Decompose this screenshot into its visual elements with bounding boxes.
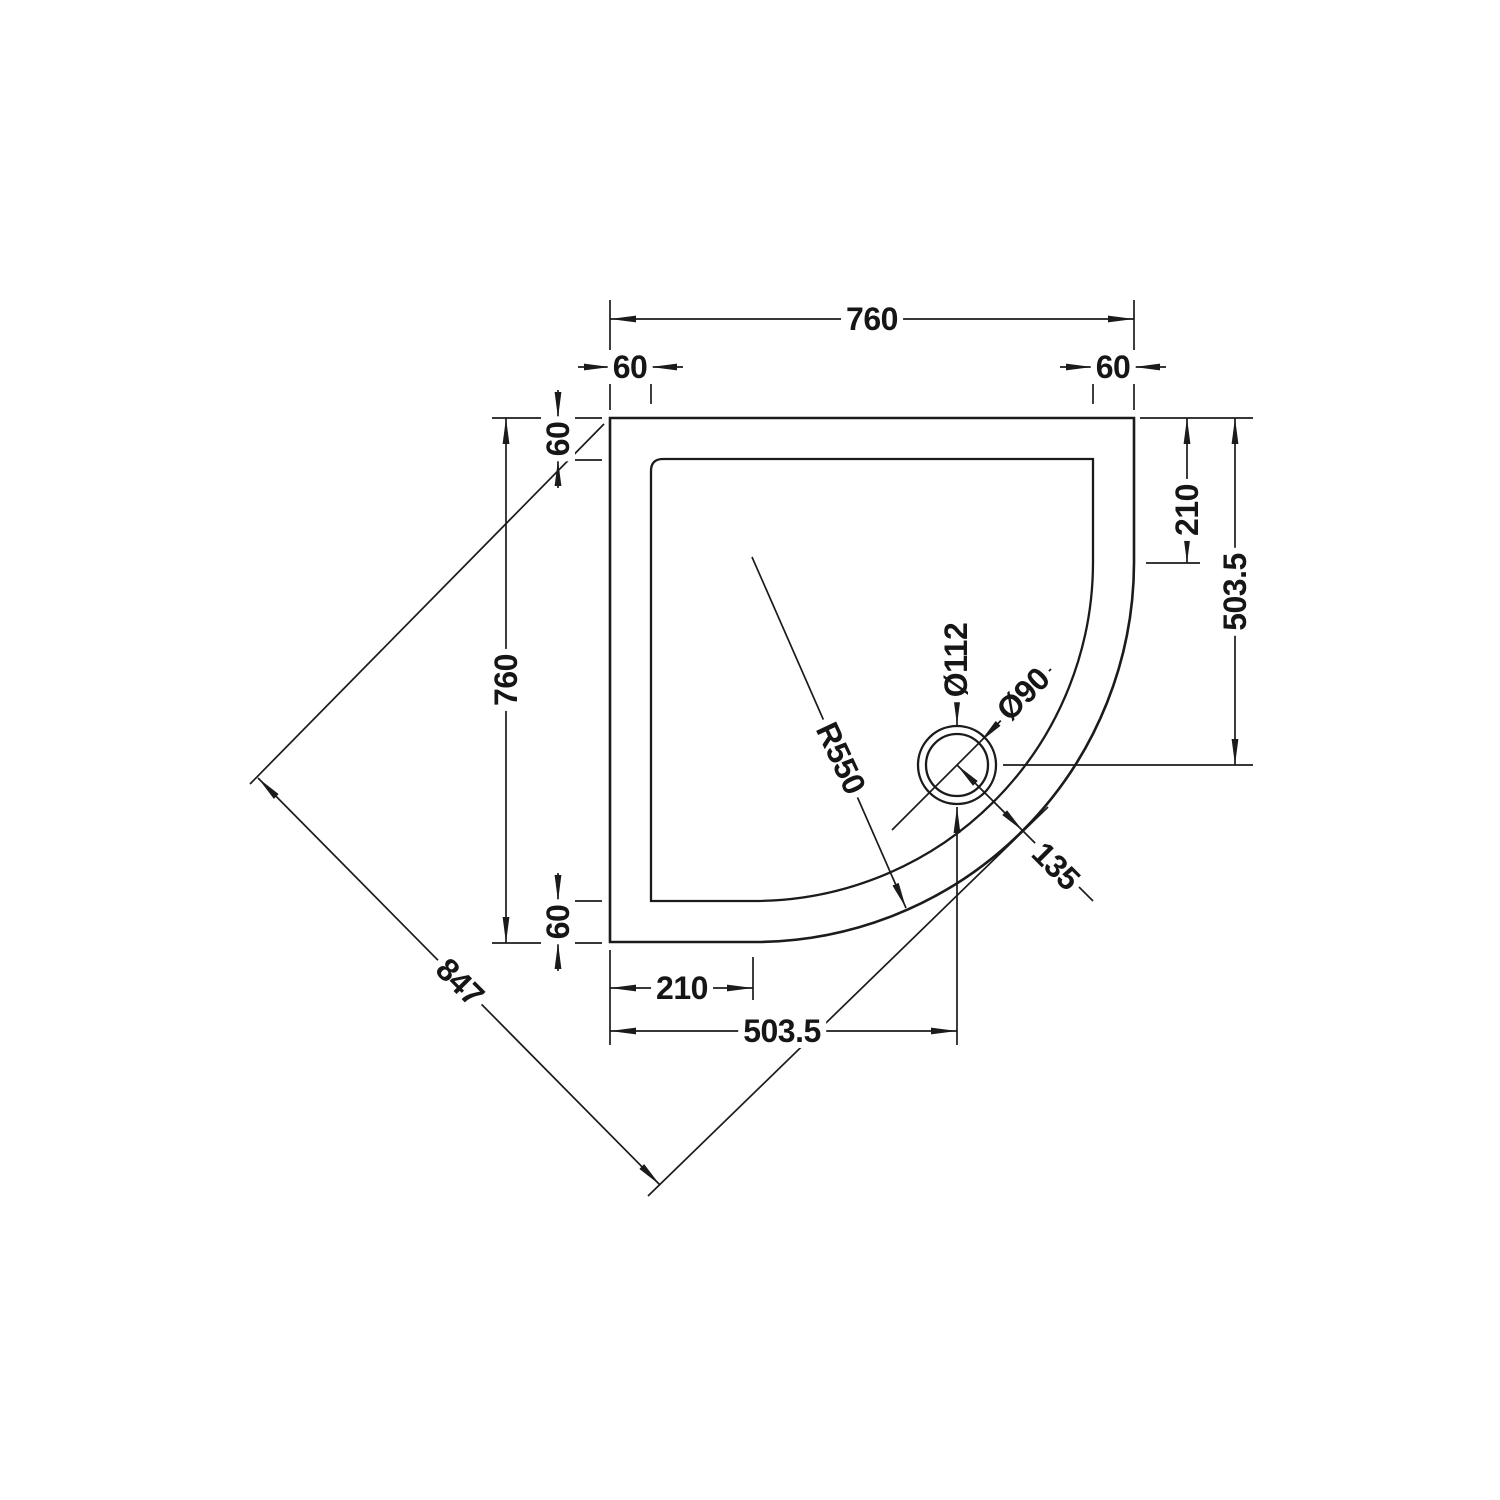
dim-top-right-flange-label: 60: [1091, 350, 1136, 384]
dim-top-width-label: 760: [841, 302, 903, 336]
leader-waste-inner-dia-tail: [892, 742, 980, 830]
dim-bottom-drain-offset-label: 503.5: [738, 1014, 826, 1048]
dim-left-height-label: 760: [489, 649, 523, 711]
ext-diagonal-corner: [250, 424, 604, 784]
dimension-lines: [258, 319, 1235, 1185]
dim-top-left-flange-label: 60: [608, 350, 653, 384]
dim-right-straight-label: 210: [1170, 479, 1204, 541]
dim-left-bottom-flange-label: 60: [541, 900, 575, 945]
engineering-drawing-canvas: 760 60 60 760 60 60 210 503.5 210 503.5 …: [0, 0, 1500, 1500]
dim-drain-to-edge-line: [957, 765, 1023, 831]
dim-right-drain-offset-label: 503.5: [1218, 548, 1252, 636]
dim-left-top-flange-label: 60: [541, 417, 575, 462]
dim-bottom-straight-label: 210: [651, 971, 713, 1005]
extension-lines: [250, 300, 1253, 1196]
shower-tray-drawing: [0, 0, 1500, 1500]
dim-waste-outer-dia-label: Ø112: [939, 618, 973, 703]
